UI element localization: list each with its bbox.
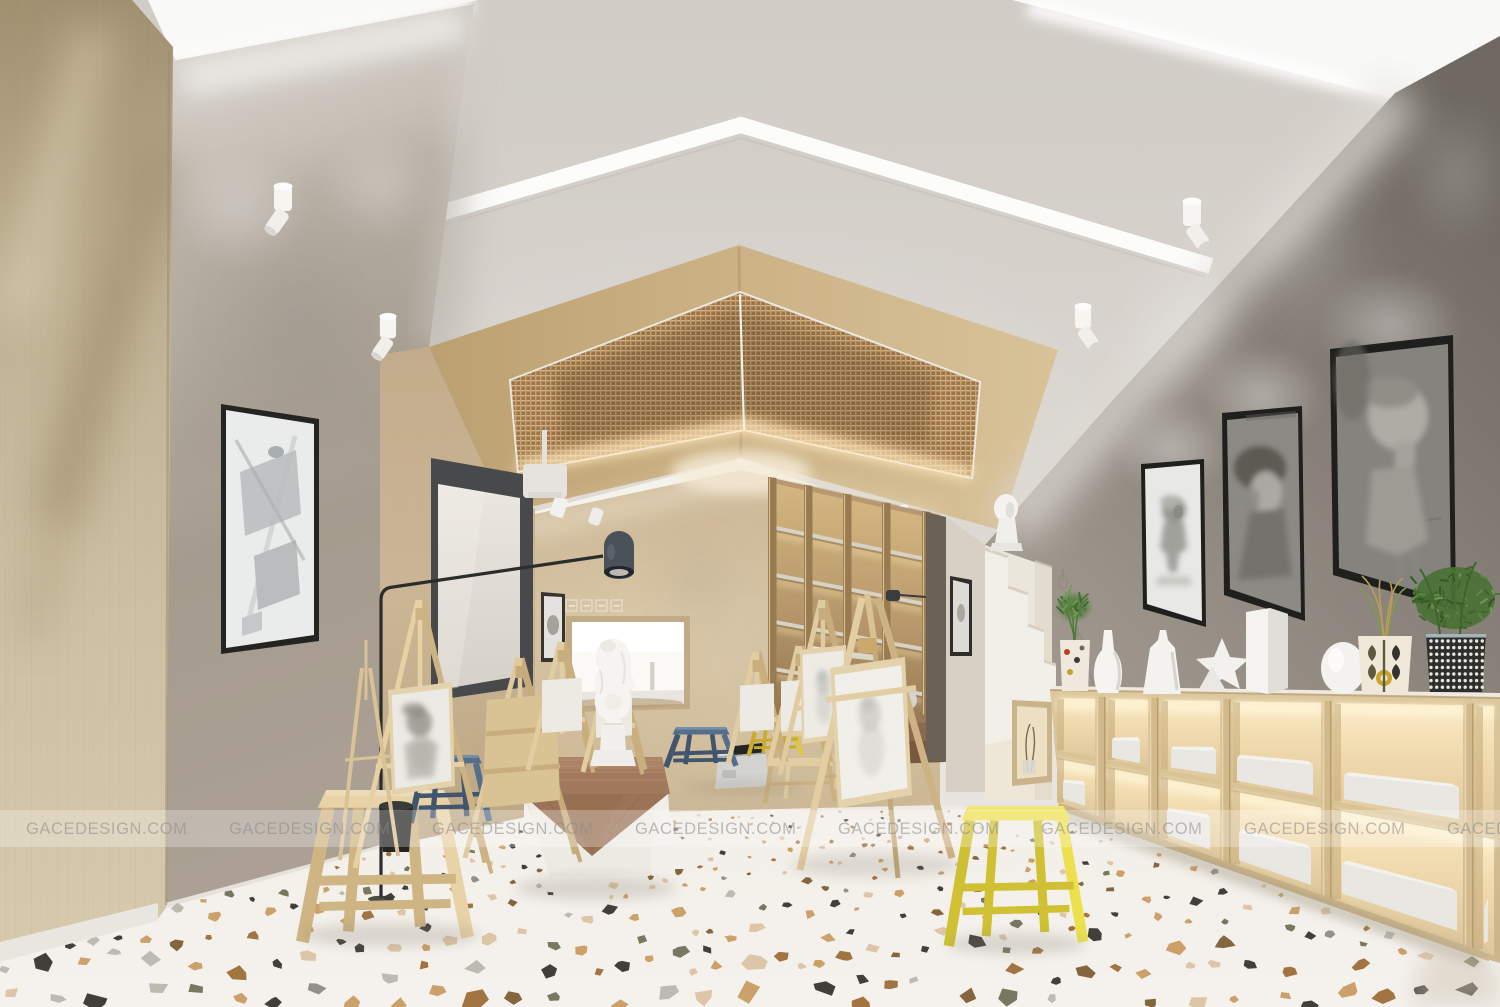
svg-text:GACEDESIGN.COM: GACEDESIGN.COM: [229, 820, 391, 838]
svg-text:GACEDESIGN.COM: GACEDESIGN.COM: [1244, 820, 1406, 838]
svg-text:GACEDESIGN.COM: GACEDESIGN.COM: [1041, 820, 1203, 838]
svg-text:GACEDESIGN.COM: GACEDESIGN.COM: [635, 820, 797, 838]
svg-text:GACEDESIGN.COM: GACEDESIGN.COM: [1447, 820, 1500, 838]
svg-text:GACEDESIGN.COM: GACEDESIGN.COM: [432, 820, 594, 838]
svg-text:GACEDESIGN.COM: GACEDESIGN.COM: [26, 820, 188, 838]
svg-text:GACEDESIGN.COM: GACEDESIGN.COM: [838, 820, 1000, 838]
